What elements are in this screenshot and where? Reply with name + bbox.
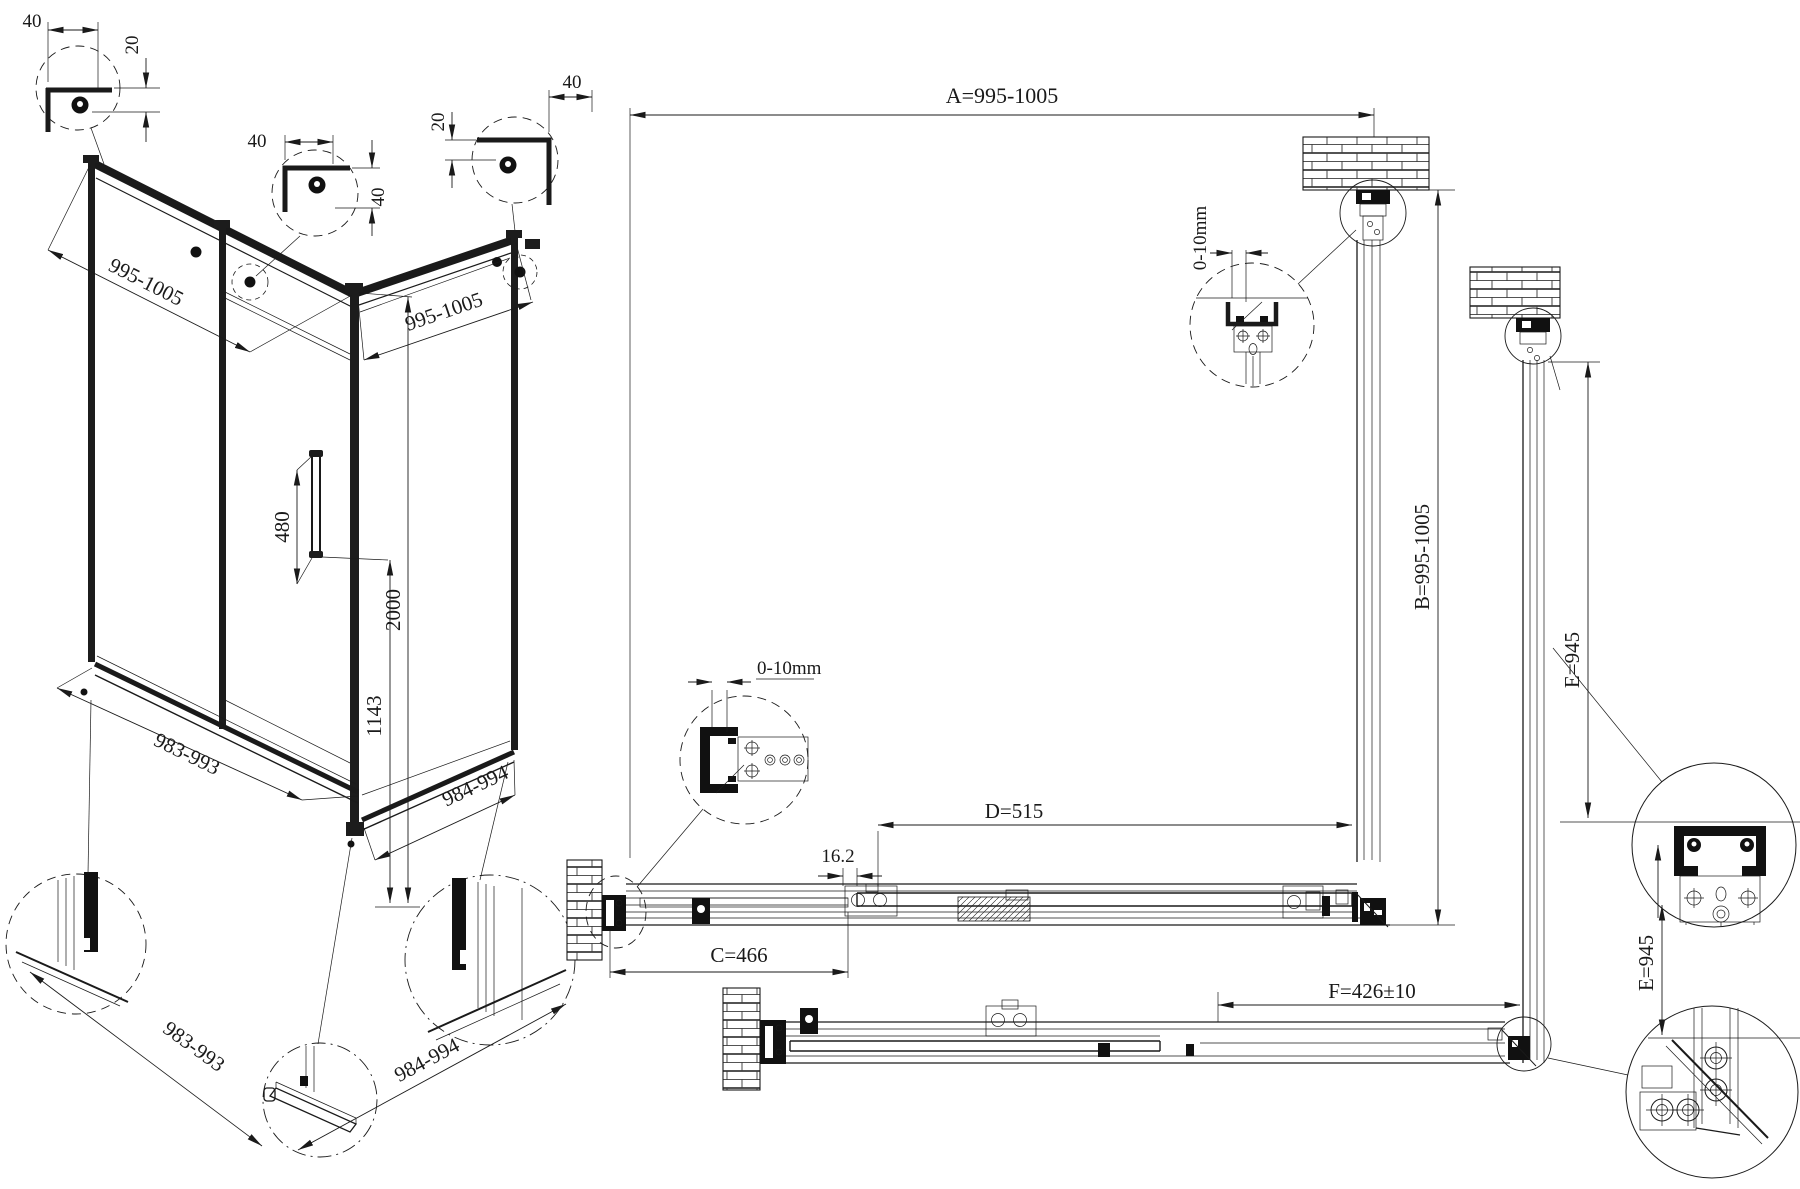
brick-wall-top bbox=[1303, 137, 1429, 190]
brick-wall-left bbox=[567, 860, 602, 960]
handle-length-label: 480 bbox=[270, 511, 294, 543]
detail1-width-label: 40 bbox=[23, 11, 42, 32]
brick-wall-bottom bbox=[723, 988, 760, 1090]
wall-gap-top-label: 0-10mm bbox=[1190, 206, 1211, 271]
technical-drawing-canvas: 40 20 40 40 20 40 bbox=[0, 0, 1800, 1189]
brick-wall-right bbox=[1470, 267, 1560, 318]
detail2-width-label: 40 bbox=[248, 131, 267, 152]
dim-f-label: F=426±10 bbox=[1328, 979, 1416, 1003]
detail3-height-label: 20 bbox=[428, 113, 449, 132]
overlap-label: 16.2 bbox=[821, 846, 854, 867]
dim-b-label: B=995-1005 bbox=[1410, 504, 1434, 610]
dim-d-label: D=515 bbox=[985, 799, 1044, 823]
dim-e-lower-label: E=945 bbox=[1634, 935, 1658, 991]
wall-gap-left-label: 0-10mm bbox=[757, 658, 822, 679]
wall-profile-bottom-fitting bbox=[760, 1020, 786, 1064]
total-height-label: 2000 bbox=[381, 589, 405, 631]
dim-e-upper-label: E=945 bbox=[1560, 632, 1584, 688]
detail3-width-label: 40 bbox=[563, 72, 582, 93]
dim-c-label: C=466 bbox=[710, 943, 767, 967]
detail1-height-label: 20 bbox=[122, 36, 143, 55]
detail2-height-label: 40 bbox=[368, 188, 389, 207]
handle-height-label: 1143 bbox=[362, 695, 386, 736]
dim-a-label: A=995-1005 bbox=[946, 83, 1059, 108]
